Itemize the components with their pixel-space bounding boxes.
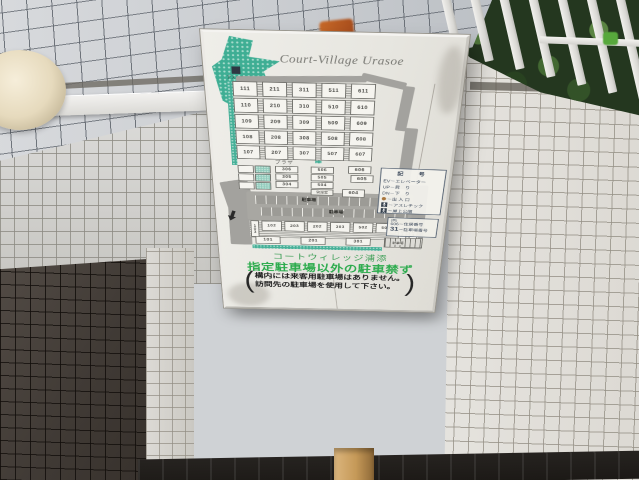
- entrance-dot-icon: [382, 197, 387, 200]
- site-map: 1112113115116111102103105106101092093095…: [216, 71, 460, 252]
- unit-cell: 308: [292, 131, 316, 145]
- unit-cell: 203: [284, 221, 304, 231]
- right-wall-tiles: [444, 48, 639, 480]
- unit-cell: 110: [233, 98, 258, 113]
- unit-cell: 505: [311, 174, 334, 181]
- unit-cell: 309: [292, 115, 316, 130]
- parking-label: 駐車場: [327, 211, 345, 216]
- unit-cell: 210: [263, 98, 288, 113]
- unit-cell: 511: [321, 83, 346, 99]
- small-parking-box: 駐車場: [384, 238, 423, 249]
- green-object: [603, 32, 618, 45]
- unit-cell: 508: [321, 132, 345, 146]
- unit-cell: 303: [330, 222, 351, 232]
- unit-cell: 209: [263, 115, 288, 130]
- unit-cell: 611: [351, 84, 376, 100]
- small-unit-cell: [255, 182, 271, 190]
- unit-cell: 306: [275, 166, 298, 173]
- unit-cell: 103: [250, 220, 259, 236]
- unit-cell: 101: [255, 236, 280, 244]
- legend-row-label: －屋上公園: [387, 208, 413, 215]
- unit-cell: 301: [345, 238, 370, 246]
- unit-cell: 211: [262, 82, 287, 98]
- plaza-label: プラザ: [275, 159, 294, 166]
- example-box: (例) 606－住居番号 31－駐車場番号: [386, 217, 439, 237]
- warning-note-line: 訪問先の駐車場を使用して下さい。: [255, 280, 405, 291]
- office-cell: 管理室: [311, 189, 334, 195]
- unit-cell: 202: [307, 222, 327, 232]
- photo-scene: アスレチック Court-Village Urasoe 111211311511…: [0, 0, 639, 480]
- paren-close: ): [405, 274, 417, 294]
- unit-cell: 510: [321, 100, 346, 115]
- unit-cell: 509: [321, 116, 345, 131]
- unit-cell: 608: [349, 132, 373, 146]
- small-unit-cell: [255, 174, 271, 182]
- mid-left-stack: 306305304: [275, 166, 298, 188]
- site-map-signboard: アスレチック Court-Village Urasoe 111211311511…: [200, 29, 470, 312]
- dark-wall-tiles: [0, 258, 162, 480]
- road: [395, 86, 415, 132]
- athletic-icon: [381, 202, 387, 207]
- map-legend: 記 号 EV－エレベーターUP－昇 りDN－下 り－出 入 口－アスレチック－屋…: [377, 168, 447, 216]
- unit-cell: 307: [293, 146, 317, 160]
- sign-title: Court-Village Urasoe: [280, 52, 467, 69]
- signboard-wrapper: アスレチック Court-Village Urasoe 111211311511…: [200, 32, 470, 440]
- unit-cell: 310: [292, 99, 317, 114]
- unit-cell: 102: [261, 221, 282, 231]
- mid-right-stack: 506505504: [311, 167, 334, 189]
- paren-open: (: [244, 270, 255, 290]
- unit-cell: 111: [232, 81, 258, 97]
- unit-cell: 311: [292, 82, 317, 98]
- unit-cell: 201: [301, 237, 326, 245]
- unit-cell: 109: [234, 114, 259, 129]
- wooden-post: [334, 448, 374, 480]
- unit-cell: 506: [311, 167, 334, 174]
- unit-cell: 207: [264, 146, 288, 160]
- small-unit-cell: [238, 173, 254, 181]
- unit-cell: 504: [311, 182, 334, 189]
- rooftop-park-icon: [380, 208, 386, 213]
- unit-cell: 607: [348, 148, 372, 162]
- unit-cell: 507: [321, 147, 345, 161]
- unit-cell: 304: [275, 181, 298, 188]
- unit-cell: 107: [236, 145, 260, 159]
- dark-tile-band: [138, 451, 639, 480]
- main-unit-grid: 1112113115116111102103105106101092093095…: [232, 81, 376, 162]
- unit-cell: 605: [350, 175, 373, 183]
- unit-cell: 502: [353, 223, 374, 233]
- unit-cell: 108: [235, 130, 260, 144]
- small-unit-cell: [238, 165, 254, 173]
- unit-cell: 606: [348, 166, 372, 174]
- wall-pillar-tiles: [146, 248, 194, 480]
- small-unit-cell: [239, 182, 255, 190]
- unit-cell: 610: [350, 100, 375, 115]
- left-cluster: [238, 165, 272, 190]
- unit-cell: 609: [350, 116, 375, 131]
- small-unit-cell: [254, 165, 270, 173]
- unit-cell: 208: [264, 130, 288, 144]
- small-parking-label: 駐車場: [391, 241, 404, 245]
- unit-cell: 305: [275, 174, 298, 181]
- parking-label: 駐車場: [300, 198, 318, 203]
- example-line: 31－駐車場番号: [390, 227, 435, 234]
